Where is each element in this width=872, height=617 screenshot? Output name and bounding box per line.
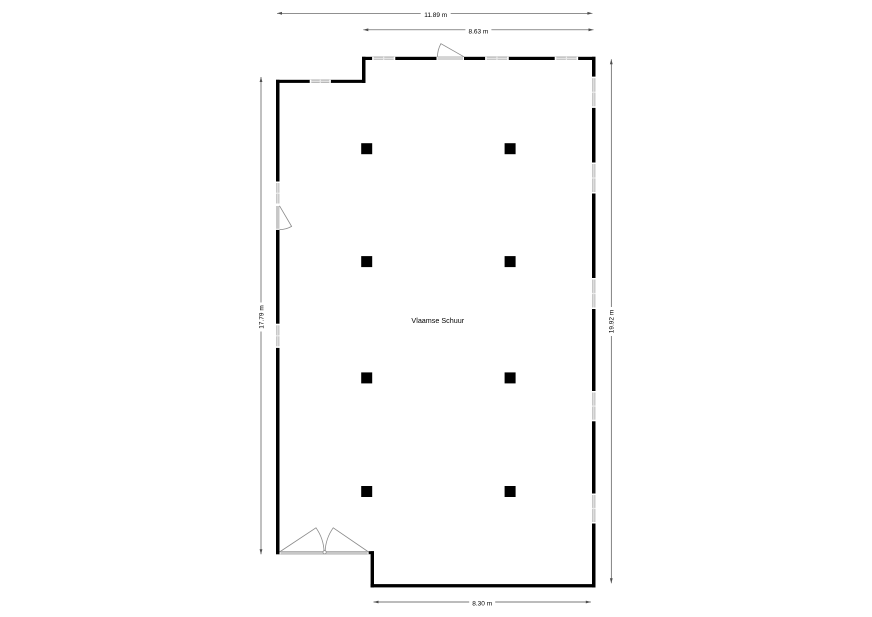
svg-text:19.92 m: 19.92 m <box>609 310 616 334</box>
svg-text:11.89 m: 11.89 m <box>424 12 447 19</box>
svg-text:17.79 m: 17.79 m <box>258 305 265 329</box>
svg-text:8.63 m: 8.63 m <box>468 28 488 35</box>
svg-text:8.30 m: 8.30 m <box>472 601 492 608</box>
svg-text:Vlaamse Schuur: Vlaamse Schuur <box>411 316 464 325</box>
